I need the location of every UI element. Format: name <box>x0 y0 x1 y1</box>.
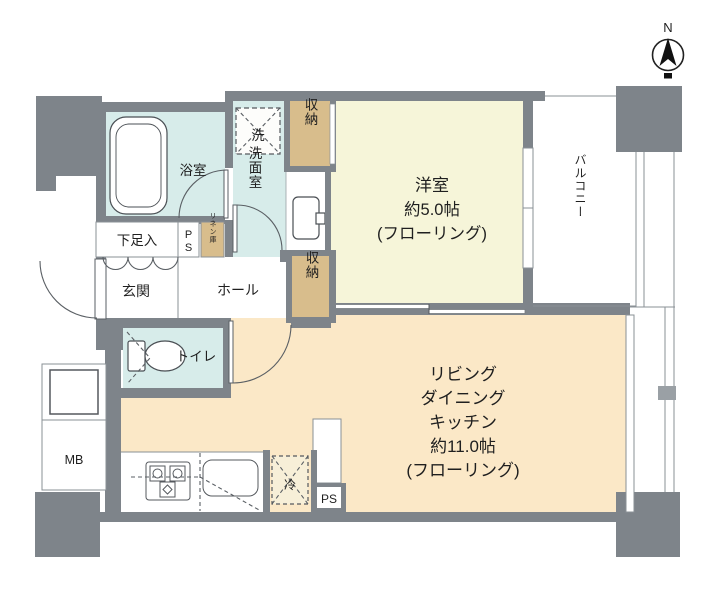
toilet-label: トイレ <box>176 349 217 364</box>
ldk-window <box>626 315 634 512</box>
fridge-label: 冷 <box>284 478 296 492</box>
washroom-door-leaf <box>233 205 237 252</box>
bath-label: 浴室 <box>180 162 207 178</box>
pillar-bottom-left <box>35 492 100 557</box>
ldk-line-living: リビング <box>429 365 497 384</box>
hall-label: ホール <box>217 282 259 298</box>
front-door-arc <box>40 261 97 318</box>
linen-label: リネン庫 <box>209 212 217 244</box>
washer-label: 洗 <box>251 128 265 143</box>
floor-plan-page: 浴室 洗 洗面室 収納 収納 下足入 P S リネン庫 玄関 ホール トイレ M… <box>0 0 720 592</box>
closet-upper-label: 収納 <box>303 97 319 127</box>
stove-icon <box>146 462 190 500</box>
ps-top-letter-p: P <box>185 229 192 241</box>
sink-icon <box>203 460 258 496</box>
pillar-top-right <box>616 86 682 152</box>
western-room-size: 約5.0帖 <box>404 200 460 219</box>
ps-bottom-label: PS <box>321 492 337 506</box>
pillar-top-left-leg <box>36 176 56 191</box>
compass-base-mark <box>664 73 672 79</box>
ldk-line-size: 約11.0帖 <box>430 437 496 456</box>
shoe-cabinet-door-arcs <box>103 257 178 270</box>
shoe-cabinet-label: 下足入 <box>117 233 158 248</box>
bath-door-leaf <box>224 170 228 218</box>
pillar-top-left <box>36 96 102 176</box>
ps-top-letter-s: S <box>185 242 192 254</box>
bathtub-icon <box>110 117 167 214</box>
meter-box <box>42 364 106 490</box>
western-room-name: 洋室 <box>415 176 449 195</box>
meter-box-label: MB <box>65 453 84 467</box>
entrance-label: 玄関 <box>122 283 150 299</box>
ldk-line-kitchen: キッチン <box>429 413 497 432</box>
washroom-label: 洗面室 <box>247 146 263 190</box>
ldk-door-leaf <box>229 321 233 383</box>
closet-hall-label: 収納 <box>304 250 320 280</box>
front-door-leaf <box>95 259 106 319</box>
floor-plan-svg: 浴室 洗 洗面室 収納 収納 下足入 P S リネン庫 玄関 ホール トイレ M… <box>0 0 720 592</box>
ldk-line-dining: ダイニング <box>421 389 506 408</box>
compass-north-label: N <box>663 20 672 35</box>
compass-needle <box>660 38 677 66</box>
balcony-label: バルコニー <box>573 154 587 219</box>
ldk-line-flooring: (フローリング) <box>406 461 519 480</box>
compass-icon: N <box>653 20 684 79</box>
railing-joint <box>658 386 676 400</box>
western-room-flooring: (フローリング) <box>377 224 487 243</box>
kitchen-counter <box>313 419 341 483</box>
